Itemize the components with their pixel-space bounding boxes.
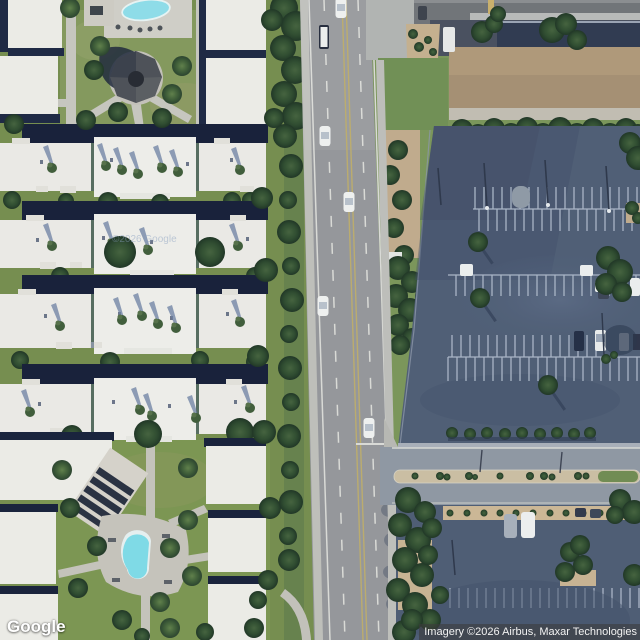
svg-text:©2026 Google: ©2026 Google (112, 234, 177, 245)
